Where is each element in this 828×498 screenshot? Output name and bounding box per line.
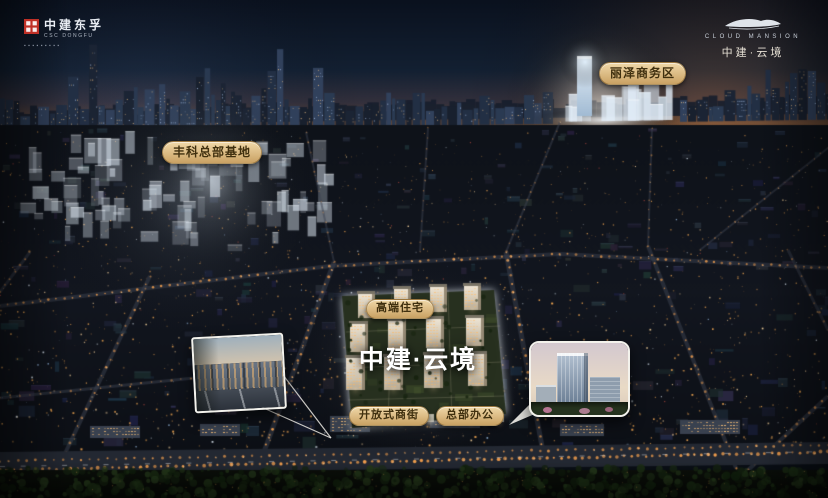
brand-name-en: CSC DONGFU xyxy=(44,33,104,39)
brand-seal-icon xyxy=(24,19,39,34)
inset-flowerbed xyxy=(543,407,552,413)
label-open-commercial-street: 开放式商街 xyxy=(349,406,429,426)
label-lize-business-district: 丽泽商务区 xyxy=(599,62,686,85)
label-hq-office: 总部办公 xyxy=(436,406,504,426)
inset-low-wing xyxy=(536,385,556,402)
inset-shadow xyxy=(193,335,285,412)
project-name-cn: 中建·云境 xyxy=(698,44,808,60)
label-highend-residence: 高端住宅 xyxy=(366,299,434,319)
street-level-photo-inset xyxy=(191,333,287,414)
label-fengke-hq-base: 丰科总部基地 xyxy=(162,141,262,164)
office-tower-photo-inset xyxy=(529,341,630,417)
project-name-en: CLOUD MANSION xyxy=(698,34,808,40)
developer-logo: 中建东孚 CSC DONGFU ▪▪▪▪▪▪▪▪▪ xyxy=(24,19,104,49)
brand-name-cn: 中建东孚 xyxy=(44,19,104,31)
project-title: 中建·云境 xyxy=(350,340,486,376)
cloud-mansion-icon xyxy=(721,15,785,31)
inset-podium xyxy=(590,377,620,402)
project-logo: CLOUD MANSION 中建·云境 xyxy=(698,15,808,60)
inset-flowerbed xyxy=(605,407,613,412)
inset-flowerbed xyxy=(579,408,590,414)
inset-tower xyxy=(557,353,588,402)
brand-tagline-microtext: ▪▪▪▪▪▪▪▪▪ xyxy=(24,43,104,49)
aerial-city-render: 丰科总部基地 丽泽商务区 高端住宅 开放式商街 总部办公 中建·云境 中建东孚 … xyxy=(0,0,828,498)
